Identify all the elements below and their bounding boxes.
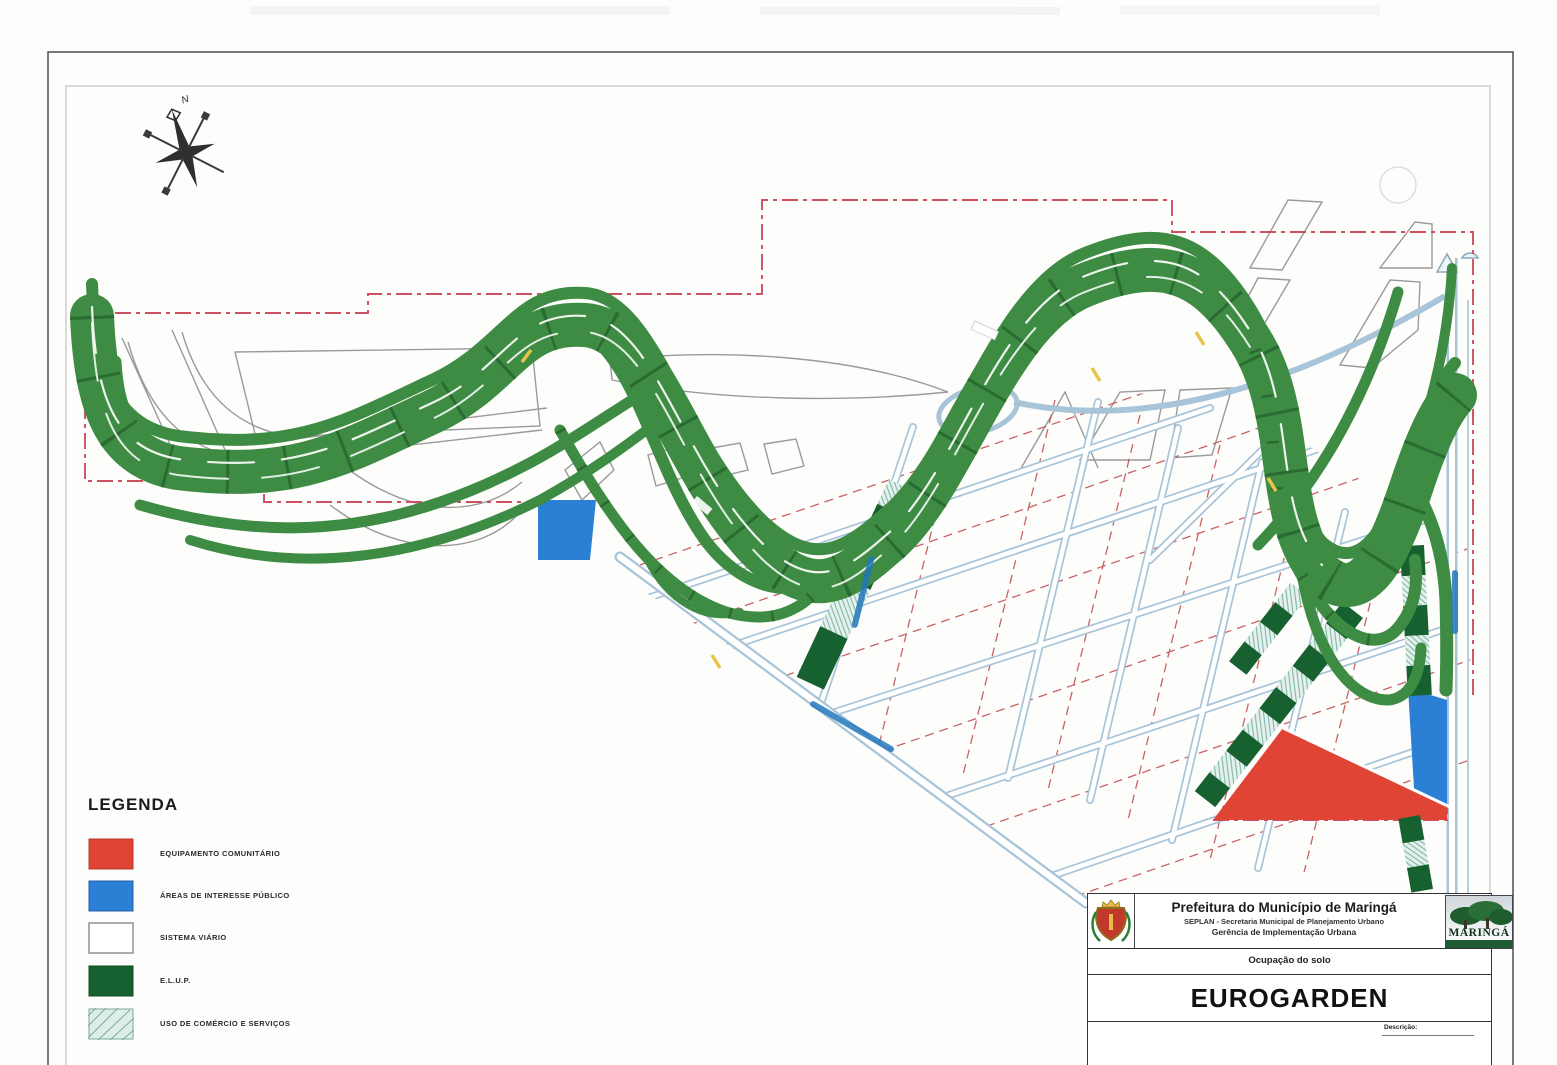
legend: LEGENDA EQUIPAMENTO COMUNITÁRIO ÁREAS DE… bbox=[88, 795, 418, 815]
legend-label-equipamento: EQUIPAMENTO COMUNITÁRIO bbox=[160, 849, 280, 858]
legend-label-interesse-publico: ÁREAS DE INTERESSE PÚBLICO bbox=[160, 891, 290, 900]
coat-of-arms bbox=[1088, 894, 1135, 948]
project-title: EUROGARDEN bbox=[1088, 983, 1491, 1014]
title-block-subject-row: Ocupação do solo bbox=[1088, 948, 1491, 975]
legend-swatch-sistema-viario bbox=[89, 923, 133, 953]
maringa-logo: MARINGÁ bbox=[1445, 895, 1513, 949]
title-block-header-row: Prefeitura do Município de Maringá SEPLA… bbox=[1088, 894, 1491, 948]
title-block-project-row: EUROGARDEN bbox=[1088, 974, 1491, 1022]
compass-rose: N bbox=[135, 89, 231, 198]
title-block-footer-row: Descrição: bbox=[1088, 1021, 1491, 1065]
legend-title: LEGENDA bbox=[88, 795, 418, 815]
title-block: Prefeitura do Município de Maringá SEPLA… bbox=[1087, 893, 1492, 1065]
description-fill-line bbox=[1382, 1035, 1474, 1036]
logo-bottom-bar bbox=[1446, 940, 1512, 948]
scanned-plan-page: N bbox=[0, 0, 1557, 1065]
logo-tree-3 bbox=[1489, 909, 1512, 925]
crown-icon bbox=[1102, 900, 1120, 907]
scan-noise bbox=[250, 6, 1380, 15]
dept-line2: Gerência de Implementação Urbana bbox=[1134, 927, 1434, 937]
legend-label-sistema-viario: SISTEMA VIÁRIO bbox=[160, 933, 227, 942]
legend-label-comercio-servicos: USO DE COMÉRCIO E SERVIÇOS bbox=[160, 1019, 290, 1028]
legend-swatch-interesse-publico bbox=[89, 881, 133, 911]
legend-label-elup: E.L.U.P. bbox=[160, 976, 191, 985]
legend-swatch-elup bbox=[89, 966, 133, 996]
description-label: Descrição: bbox=[1384, 1024, 1417, 1031]
org-name: Prefeitura do Município de Maringá bbox=[1134, 900, 1434, 915]
logo-wordmark: MARINGÁ bbox=[1446, 927, 1512, 939]
shield-detail bbox=[1109, 914, 1113, 930]
checkered-strip-below-blue bbox=[1398, 815, 1433, 893]
legend-swatch-equipamento bbox=[89, 839, 133, 869]
title-block-org-cell: Prefeitura do Município de Maringá SEPLA… bbox=[1134, 894, 1434, 948]
dept-line1: SEPLAN - Secretaria Municipal de Planeja… bbox=[1134, 917, 1434, 926]
checkered-strip-right-2 bbox=[1229, 582, 1308, 674]
compass-north-label: N bbox=[180, 94, 191, 107]
plan-subject: Ocupação do solo bbox=[1088, 955, 1491, 966]
